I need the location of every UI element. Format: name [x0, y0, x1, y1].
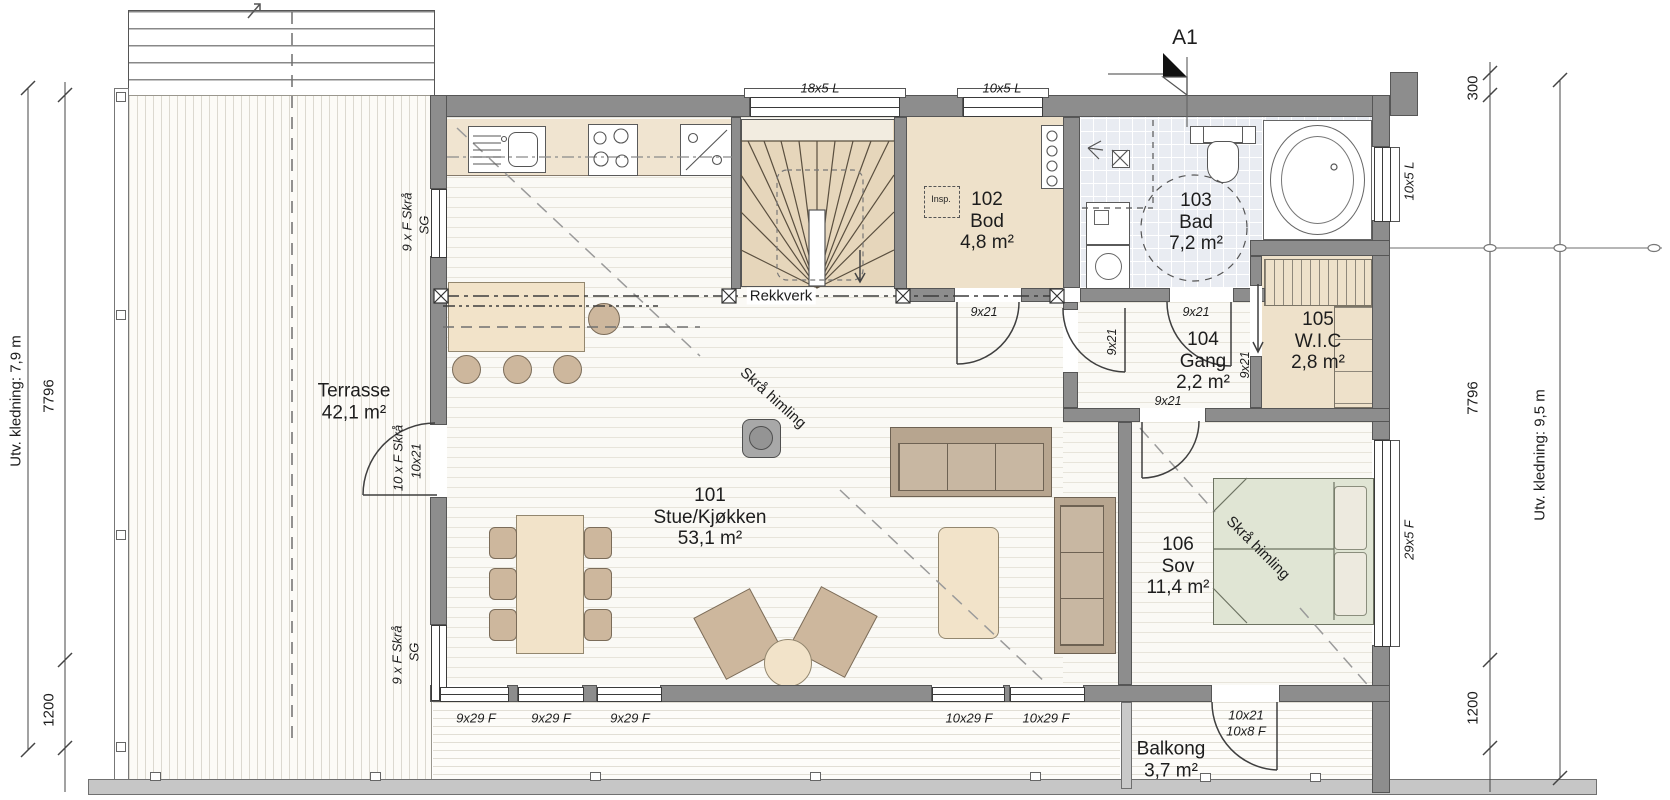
railing-label: Rekkverk — [747, 288, 816, 305]
room-name: W.I.C — [1291, 330, 1345, 352]
room-area: 2,8 m² — [1291, 352, 1345, 374]
room-name: Bad — [1169, 211, 1223, 233]
dimension-lines-right — [1483, 62, 1567, 792]
floor-plan: 101 Stue/Kjøkken 53,1 m² 102 Bod 4,8 m² … — [0, 0, 1670, 800]
facade-label: SG — [407, 643, 422, 662]
room-area: 53,1 m² — [654, 528, 767, 550]
dimension-label: 1200 — [41, 693, 58, 726]
section-label-a1: A1 — [1172, 26, 1198, 50]
door-label: 9x21 — [1182, 305, 1209, 319]
window-label: 10x29 F — [1023, 711, 1070, 726]
window-label: 9x29 F — [456, 711, 496, 726]
inspection-label: Insp. — [931, 194, 951, 204]
door-label: 9x21 — [1105, 328, 1119, 355]
balcony-door-label: 10x8 F — [1226, 724, 1266, 739]
room-area: 2,2 m² — [1176, 372, 1230, 394]
facade-label: 9 x F Skrå — [390, 625, 405, 684]
dimension-label: 1200 — [1465, 691, 1482, 724]
room-area: 7,2 m² — [1169, 233, 1223, 255]
dishwasher-symbol — [686, 130, 727, 170]
window-label: 10x5 L — [982, 81, 1021, 96]
facade-label: SG — [417, 216, 432, 235]
window-label: 29x5 F — [1402, 520, 1417, 560]
dimension-lines-left — [21, 81, 72, 792]
room-number: 103 — [1169, 190, 1223, 212]
room-area: 4,8 m² — [960, 232, 1014, 254]
terrace-name: Terrasse — [318, 381, 391, 403]
room-name: Bod — [960, 210, 1014, 232]
dimension-label: 7796 — [1465, 381, 1482, 414]
dimension-label: Utv. kledning: 7,9 m — [8, 335, 25, 466]
room-number: 102 — [960, 189, 1014, 211]
shower-head-icon — [1088, 141, 1103, 159]
window-label: 9x29 F — [610, 711, 650, 726]
room-name: Sov — [1146, 555, 1209, 577]
balcony-door-label: 10x21 — [1228, 708, 1263, 723]
bedroom-door-swing — [1142, 421, 1199, 478]
reference-line — [1390, 245, 1662, 252]
door-label: 9x21 — [1238, 351, 1252, 378]
room-label-105: 105 W.I.C 2,8 m² — [1291, 309, 1345, 374]
room-number: 104 — [1176, 329, 1230, 351]
room-name: Stue/Kjøkken — [654, 506, 767, 528]
terrace-door-label: 10 x F Skrå — [391, 425, 406, 491]
window-label: 9x29 F — [531, 711, 571, 726]
terrace-door-label: 10x21 — [409, 443, 424, 478]
room-label-103: 103 Bad 7,2 m² — [1169, 190, 1223, 255]
door-swings — [363, 284, 1277, 770]
wic-door-arrow — [1253, 284, 1263, 352]
room-label-101: 101 Stue/Kjøkken 53,1 m² — [654, 485, 767, 550]
door-label: 9x21 — [1154, 394, 1181, 408]
door-label: 9x21 — [970, 305, 997, 319]
balcony-label: Balkong 3,7 m² — [1137, 739, 1206, 782]
room-label-102: 102 Bod 4,8 m² — [960, 189, 1014, 254]
dimension-label: 300 — [1465, 75, 1482, 100]
room-label-104: 104 Gang 2,2 m² — [1176, 329, 1230, 394]
balcony-area: 3,7 m² — [1137, 760, 1206, 782]
dimension-label: Utv. kledning: 9,5 m — [1532, 389, 1549, 520]
facade-label: 9 x F Skrå — [400, 192, 415, 251]
terrace-area: 42,1 m² — [318, 402, 391, 424]
north-arrow-fragment — [248, 4, 260, 18]
window-label: 10x29 F — [946, 711, 993, 726]
room-number: 101 — [654, 485, 767, 507]
room-name: Gang — [1176, 350, 1230, 372]
stair-treads — [741, 141, 894, 288]
sloped-ceiling-lines — [457, 128, 1372, 690]
section-marker-a1 — [1108, 53, 1187, 127]
room-number: 105 — [1291, 309, 1345, 331]
terrace-label: Terrasse 42,1 m² — [318, 381, 391, 424]
linework-overlay — [0, 0, 1670, 800]
dimension-label: 7796 — [41, 379, 58, 412]
room-area: 11,4 m² — [1146, 577, 1209, 599]
room-number: 106 — [1146, 534, 1209, 556]
window-label: 10x5 L — [1402, 161, 1417, 200]
window-label: 18x5 L — [800, 81, 839, 96]
balcony-name: Balkong — [1137, 739, 1206, 761]
room-label-106: 106 Sov 11,4 m² — [1146, 534, 1209, 599]
